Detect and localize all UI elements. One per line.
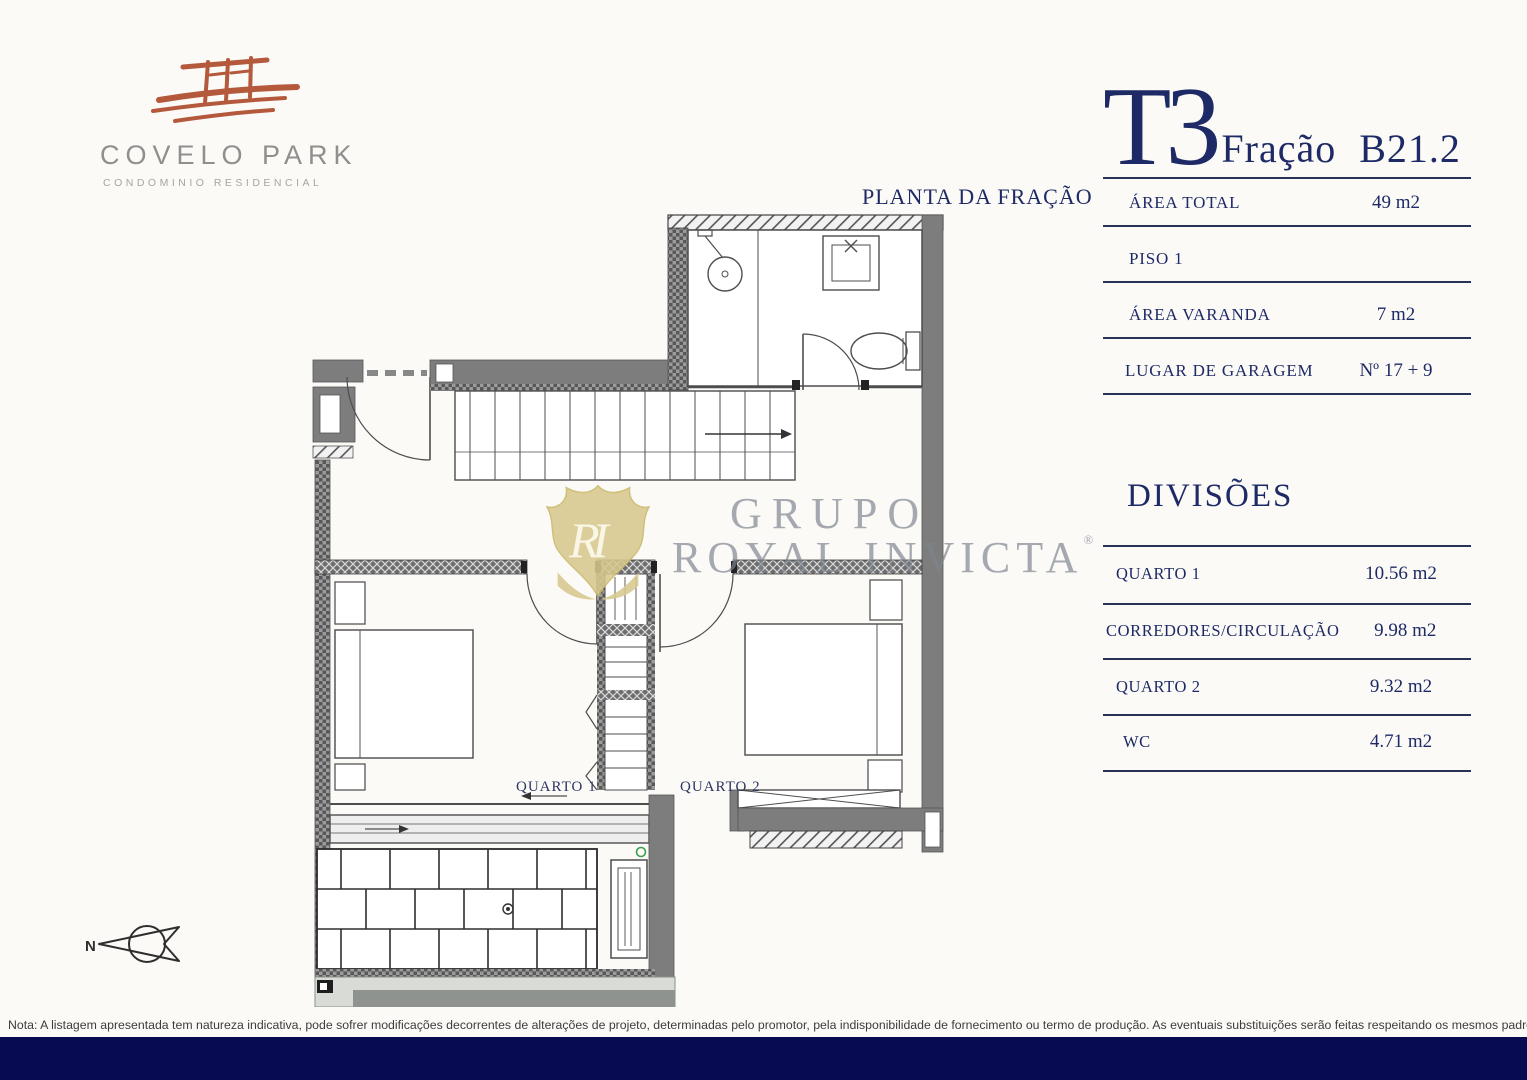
division-label: QUARTO 1 bbox=[1103, 564, 1331, 584]
plan-title: PLANTA DA FRAÇÃO bbox=[862, 184, 1093, 210]
summary-label: PISO 1 bbox=[1103, 249, 1321, 269]
room-label-quarto1: QUARTO 1 bbox=[516, 779, 597, 796]
division-row-quarto2: QUARTO 2 9.32 m2 bbox=[1103, 662, 1471, 712]
summary-divider bbox=[1103, 337, 1471, 339]
registered-mark: ® bbox=[1083, 532, 1093, 547]
room-label-quarto2: QUARTO 2 bbox=[680, 779, 761, 796]
quarto1-window-band bbox=[330, 792, 649, 843]
compass-north-label: N bbox=[85, 938, 96, 955]
summary-label: ÁREA TOTAL bbox=[1103, 193, 1321, 213]
floorplan-sheet: COVELO PARK CONDOMINIO RESIDENCIAL T3 Fr… bbox=[0, 0, 1527, 1080]
watermark-line1: GRUPO bbox=[672, 494, 1093, 534]
logo-name: COVELO PARK bbox=[100, 140, 380, 171]
division-value: 9.98 m2 bbox=[1340, 620, 1471, 642]
balcony-tiles bbox=[317, 849, 597, 969]
summary-divider bbox=[1103, 393, 1471, 395]
door-jamb bbox=[861, 380, 869, 390]
brand-logo: COVELO PARK CONDOMINIO RESIDENCIAL bbox=[100, 45, 380, 189]
fraction-code: B21.2 bbox=[1359, 126, 1461, 171]
footer-bar bbox=[0, 1037, 1527, 1080]
division-row-corredores: CORREDORES/CIRCULAÇÃO 9.98 m2 bbox=[1103, 606, 1471, 656]
summary-row-garagem: LUGAR DE GARAGEM Nº 17 + 9 bbox=[1103, 348, 1471, 394]
logo-subtitle: CONDOMINIO RESIDENCIAL bbox=[103, 177, 380, 189]
green-marker-icon bbox=[637, 848, 646, 857]
summary-divider bbox=[1103, 225, 1471, 227]
summary-row-piso: PISO 1 bbox=[1103, 236, 1471, 282]
divisions-divider bbox=[1103, 658, 1471, 660]
quarto1-furniture bbox=[335, 582, 473, 790]
floor-plan-drawing bbox=[305, 212, 955, 1007]
bed-quarto2 bbox=[745, 624, 902, 755]
summary-divider bbox=[1103, 281, 1471, 283]
division-label: WC bbox=[1103, 732, 1331, 752]
title-underline bbox=[1103, 177, 1471, 179]
division-value: 10.56 m2 bbox=[1331, 563, 1471, 585]
closet-door-mark bbox=[586, 695, 597, 729]
watermark: RI GRUPO ROYAL INVICTA® bbox=[538, 480, 1093, 605]
door-jamb bbox=[792, 380, 800, 390]
division-value: 4.71 m2 bbox=[1331, 731, 1471, 753]
divisions-divider bbox=[1103, 545, 1471, 547]
north-arrow-icon: N bbox=[85, 910, 190, 978]
quarto2-furniture bbox=[745, 580, 902, 792]
floor-drain-icon bbox=[506, 907, 510, 911]
summary-value: 49 m2 bbox=[1321, 192, 1471, 214]
nightstand bbox=[335, 764, 365, 790]
division-row-wc: WC 4.71 m2 bbox=[1103, 717, 1471, 767]
summary-row-area-total: ÁREA TOTAL 49 m2 bbox=[1103, 180, 1471, 226]
summary-row-varanda: ÁREA VARANDA 7 m2 bbox=[1103, 292, 1471, 338]
summary-value: Nº 17 + 9 bbox=[1321, 360, 1471, 382]
fraction-label: Fração bbox=[1221, 126, 1336, 171]
division-label: QUARTO 2 bbox=[1103, 677, 1331, 697]
compass: N bbox=[85, 910, 190, 983]
nightstand bbox=[868, 760, 902, 792]
divisions-divider bbox=[1103, 770, 1471, 772]
division-label: CORREDORES/CIRCULAÇÃO bbox=[1103, 621, 1340, 641]
balcony-apron-step bbox=[353, 990, 675, 1007]
summary-value: 7 m2 bbox=[1321, 304, 1471, 326]
summary-label: ÁREA VARANDA bbox=[1103, 305, 1321, 325]
bed-quarto1 bbox=[335, 630, 473, 758]
division-value: 9.32 m2 bbox=[1331, 676, 1471, 698]
quarto2-window-band bbox=[730, 790, 943, 848]
divisions-divider bbox=[1103, 714, 1471, 716]
divisions-divider bbox=[1103, 603, 1471, 605]
unit-title: T3 Fração B21.2 bbox=[1103, 48, 1471, 178]
watermark-line2: ROYAL INVICTA bbox=[672, 533, 1083, 582]
watermark-crest-icon: RI bbox=[538, 480, 658, 605]
division-row-quarto1: QUARTO 1 10.56 m2 bbox=[1103, 549, 1471, 599]
logo-mark-icon bbox=[145, 45, 315, 135]
summary-label: LUGAR DE GARAGEM bbox=[1103, 361, 1321, 381]
entry-door-arc bbox=[347, 377, 430, 460]
nightstand bbox=[335, 582, 365, 624]
divisions-title: DIVISÕES bbox=[1127, 478, 1293, 515]
footer-note: Nota: A listagem apresentada tem naturez… bbox=[8, 1018, 1527, 1032]
radiator-icon bbox=[611, 860, 647, 958]
typology-label: T3 bbox=[1103, 77, 1215, 178]
